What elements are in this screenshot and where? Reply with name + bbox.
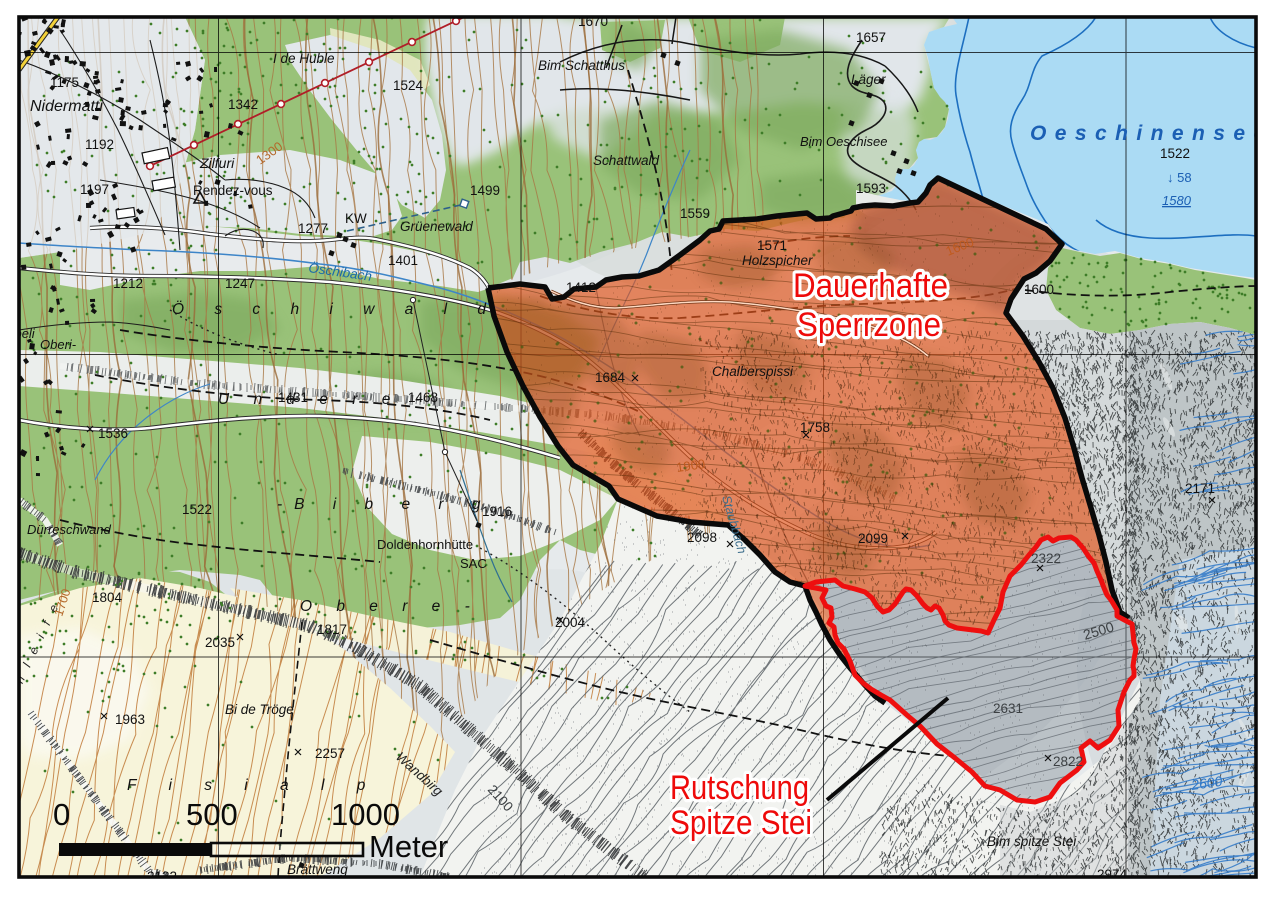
svg-text:1247: 1247 bbox=[225, 276, 255, 291]
svg-text:Bim Oeschisee: Bim Oeschisee bbox=[800, 134, 887, 149]
svg-text:Dürreschwand: Dürreschwand bbox=[27, 522, 112, 537]
svg-text:Holzspicher: Holzspicher bbox=[742, 253, 813, 268]
svg-text:1468: 1468 bbox=[408, 390, 438, 405]
svg-text:Läger: Läger bbox=[851, 72, 886, 87]
svg-text:1559: 1559 bbox=[680, 206, 710, 221]
svg-text:Chalberspissi: Chalberspissi bbox=[712, 364, 794, 379]
svg-text:Ö s c h i w a l d: Ö s c h i w a l d bbox=[172, 300, 499, 318]
svg-text:2257: 2257 bbox=[315, 746, 345, 761]
svg-text:1657: 1657 bbox=[856, 30, 886, 45]
svg-text:Nidermatti: Nidermatti bbox=[30, 98, 103, 115]
svg-text:Spitze Stei: Spitze Stei bbox=[670, 804, 812, 842]
svg-text:Zilfuri: Zilfuri bbox=[199, 155, 235, 171]
svg-text:1580: 1580 bbox=[1162, 193, 1192, 208]
svg-text:1522: 1522 bbox=[1160, 146, 1190, 161]
svg-text:500: 500 bbox=[186, 797, 238, 832]
svg-text:Rutschung: Rutschung bbox=[670, 769, 809, 807]
svg-text:1593: 1593 bbox=[856, 181, 886, 196]
svg-text:F i s i a l p: F i s i a l p bbox=[127, 777, 379, 794]
svg-text:1963: 1963 bbox=[115, 712, 145, 727]
svg-text:Grüenewald: Grüenewald bbox=[400, 219, 473, 234]
svg-text:2099: 2099 bbox=[858, 531, 888, 546]
svg-text:Sperrzone: Sperrzone bbox=[797, 306, 941, 344]
svg-text:U n d e r e -: U n d e r e - bbox=[218, 391, 430, 408]
svg-text:Schattwald: Schattwald bbox=[593, 153, 660, 168]
svg-text:1175: 1175 bbox=[50, 75, 79, 90]
svg-text:1192: 1192 bbox=[85, 137, 114, 152]
svg-text:↓ 58: ↓ 58 bbox=[1167, 170, 1192, 185]
svg-text:1412: 1412 bbox=[566, 280, 596, 295]
svg-text:Bi de Tröge: Bi de Tröge bbox=[225, 702, 294, 717]
svg-text:KW: KW bbox=[345, 211, 367, 226]
svg-text:1804: 1804 bbox=[92, 590, 123, 605]
svg-text:2974: 2974 bbox=[1097, 867, 1128, 882]
svg-text:2322: 2322 bbox=[1031, 551, 1061, 566]
svg-text:1536: 1536 bbox=[98, 426, 128, 441]
svg-text:1000: 1000 bbox=[331, 797, 400, 832]
svg-text:2171: 2171 bbox=[1185, 481, 1215, 496]
svg-text:1212: 1212 bbox=[113, 276, 143, 291]
svg-text:Bim Schatthus: Bim Schatthus bbox=[538, 58, 625, 73]
svg-text:1916: 1916 bbox=[482, 504, 512, 519]
svg-text:2004: 2004 bbox=[555, 615, 586, 630]
svg-text:1684: 1684 bbox=[595, 370, 626, 385]
svg-text:1197: 1197 bbox=[80, 182, 109, 197]
svg-text:1817: 1817 bbox=[317, 622, 347, 637]
svg-text:a d: a d bbox=[0, 460, 11, 482]
svg-text:Brättweng: Brättweng bbox=[287, 862, 348, 877]
svg-text:2631: 2631 bbox=[993, 701, 1023, 716]
svg-text:O b e r e -: O b e r e - bbox=[300, 598, 480, 615]
svg-text:I de Huble: I de Huble bbox=[273, 51, 335, 66]
svg-text:Bim spitze Stei: Bim spitze Stei bbox=[987, 834, 1077, 849]
svg-text:2098: 2098 bbox=[687, 530, 717, 545]
svg-text:Meter: Meter bbox=[369, 829, 448, 864]
svg-text:1524: 1524 bbox=[393, 78, 424, 93]
svg-text:2035: 2035 bbox=[205, 635, 235, 650]
svg-text:1571: 1571 bbox=[757, 238, 787, 253]
svg-text:1499: 1499 bbox=[470, 183, 500, 198]
svg-text:1342: 1342 bbox=[228, 97, 258, 112]
svg-text:ildi: ildi bbox=[0, 376, 17, 391]
svg-text:Rendez-vous: Rendez-vous bbox=[193, 183, 273, 198]
svg-text:1277: 1277 bbox=[298, 221, 328, 236]
svg-text:Oberi-: Oberi- bbox=[40, 337, 77, 352]
svg-text:O e s c h i n e n s e e: O e s c h i n e n s e e bbox=[1030, 122, 1267, 145]
svg-text:1401: 1401 bbox=[388, 253, 418, 268]
svg-text:1522: 1522 bbox=[182, 502, 212, 517]
svg-text:-B i b e r g: -B i b e r g bbox=[277, 496, 493, 513]
svg-text:0: 0 bbox=[53, 797, 70, 832]
svg-text:1431: 1431 bbox=[278, 390, 308, 405]
svg-text:Doldenhornhütte: Doldenhornhütte bbox=[377, 537, 473, 552]
svg-text:1600: 1600 bbox=[1024, 282, 1054, 297]
svg-text:SAC: SAC bbox=[460, 556, 487, 571]
svg-text:Dauerhafte: Dauerhafte bbox=[793, 267, 948, 305]
svg-text:2822: 2822 bbox=[1053, 754, 1083, 769]
